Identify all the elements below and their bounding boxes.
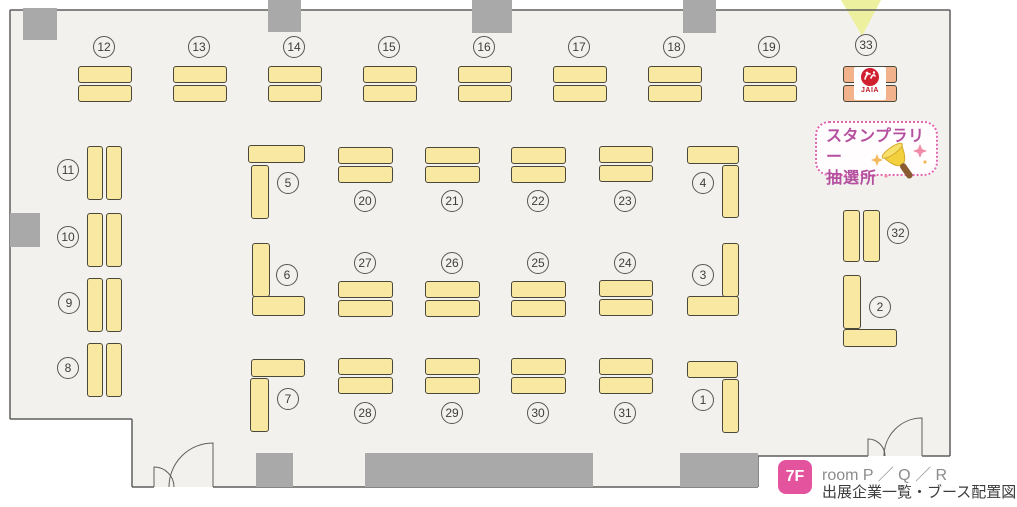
booth-11-table xyxy=(106,146,122,200)
booth-number-12: 12 xyxy=(93,36,115,58)
booth-number-29: 29 xyxy=(441,402,463,424)
booth-11-table xyxy=(87,146,103,200)
booth-number-30: 30 xyxy=(527,402,549,424)
booth-8-table xyxy=(87,343,103,397)
booth-27-table xyxy=(338,281,393,298)
floor-badge: 7F xyxy=(778,460,812,494)
pillar xyxy=(23,8,57,40)
booth-number-27: 27 xyxy=(354,252,376,274)
booth-1-table xyxy=(722,379,739,433)
booth-30-table xyxy=(511,358,566,375)
booth-23-table xyxy=(599,146,653,163)
floor-map: 1213141516171819JAIA33111098520212223462… xyxy=(0,0,1017,507)
booth-2-table xyxy=(843,329,897,347)
booth-23-table xyxy=(599,165,653,182)
handbell-icon xyxy=(868,136,938,190)
booth-number-18: 18 xyxy=(663,36,685,58)
pillar xyxy=(268,0,301,32)
booth-12-table xyxy=(78,66,132,83)
booth-number-13: 13 xyxy=(188,36,210,58)
booth-number-19: 19 xyxy=(758,36,780,58)
booth-18-table xyxy=(648,66,702,83)
booth-number-21: 21 xyxy=(441,190,463,212)
booth-24-table xyxy=(599,280,653,297)
booth-number-20: 20 xyxy=(354,190,376,212)
booth-number-28: 28 xyxy=(354,402,376,424)
booth-number-32: 32 xyxy=(887,222,909,244)
booth-25-table xyxy=(511,281,566,298)
booth-2-table xyxy=(843,275,861,329)
pillar xyxy=(365,453,593,487)
pillar xyxy=(10,213,40,247)
pillar xyxy=(256,453,293,487)
booth-5-table xyxy=(251,165,269,219)
booth-number-5: 5 xyxy=(277,172,299,194)
booth-4-table xyxy=(687,146,739,164)
booth-5-table xyxy=(248,145,305,163)
booth-number-31: 31 xyxy=(614,402,636,424)
booth-6-table xyxy=(252,296,305,316)
pillar xyxy=(680,453,758,487)
booth-20-table xyxy=(338,166,393,183)
booth-21-table xyxy=(425,166,480,183)
booth-number-2: 2 xyxy=(869,296,891,318)
booth-3-table xyxy=(687,296,739,316)
booth-9-table xyxy=(106,278,122,332)
booth-number-33: 33 xyxy=(855,34,877,56)
booth-33-logo-text: JAIA xyxy=(861,87,879,94)
booth-31-table xyxy=(599,358,653,375)
booth-number-15: 15 xyxy=(378,36,400,58)
booth-number-10: 10 xyxy=(57,226,79,248)
booth-22-table xyxy=(511,147,566,164)
booth-26-table xyxy=(425,300,480,317)
booth-26-table xyxy=(425,281,480,298)
booth-16-table xyxy=(458,85,512,102)
booth-number-22: 22 xyxy=(527,190,549,212)
booth-16-table xyxy=(458,66,512,83)
booth-number-17: 17 xyxy=(568,36,590,58)
booth-number-11: 11 xyxy=(57,159,79,181)
booth-19-table xyxy=(743,66,797,83)
booth-number-24: 24 xyxy=(614,252,636,274)
booth-15-table xyxy=(363,66,417,83)
booth-10-table xyxy=(87,213,103,267)
booth-number-9: 9 xyxy=(58,292,80,314)
booth-number-1: 1 xyxy=(692,389,714,411)
booth-number-3: 3 xyxy=(692,264,714,286)
booth-14-table xyxy=(268,66,322,83)
booth-number-4: 4 xyxy=(692,172,714,194)
booth-number-26: 26 xyxy=(441,252,463,274)
booth-10-table xyxy=(106,213,122,267)
booth-7-table xyxy=(251,359,305,377)
booth-29-table xyxy=(425,358,480,375)
booth-1-table xyxy=(687,361,738,378)
booth-number-8: 8 xyxy=(57,357,79,379)
booth-number-6: 6 xyxy=(276,264,298,286)
booth-25-table xyxy=(511,300,566,317)
pillar xyxy=(472,0,512,33)
booth-13-table xyxy=(173,85,227,102)
booth-15-table xyxy=(363,85,417,102)
booth-12-table xyxy=(78,85,132,102)
booth-9-table xyxy=(87,278,103,332)
booth-number-25: 25 xyxy=(527,252,549,274)
booth-24-table xyxy=(599,299,653,316)
booth-7-table xyxy=(250,378,269,432)
booth-32-table xyxy=(863,210,880,262)
booth-31-table xyxy=(599,377,653,394)
booth-17-table xyxy=(553,85,607,102)
booth-number-7: 7 xyxy=(277,388,299,410)
booth-33-logo: JAIA xyxy=(854,67,886,100)
booth-17-table xyxy=(553,66,607,83)
booth-22-table xyxy=(511,166,566,183)
booth-number-16: 16 xyxy=(473,36,495,58)
legend-subtitle: 出展企業一覧・ブース配置図 xyxy=(822,481,1016,502)
booth-29-table xyxy=(425,377,480,394)
booth-28-table xyxy=(338,377,393,394)
booth-32-table xyxy=(843,210,860,262)
booth-30-table xyxy=(511,377,566,394)
booth-27-table xyxy=(338,300,393,317)
booth-3-table xyxy=(722,243,739,297)
booth-13-table xyxy=(173,66,227,83)
booth-8-table xyxy=(106,343,122,397)
booth-18-table xyxy=(648,85,702,102)
booth-19-table xyxy=(743,85,797,102)
booth-14-table xyxy=(268,85,322,102)
booth-21-table xyxy=(425,147,480,164)
booth-28-table xyxy=(338,358,393,375)
booth-4-table xyxy=(722,165,739,218)
booth-number-14: 14 xyxy=(283,36,305,58)
booth-number-23: 23 xyxy=(614,190,636,212)
booth-6-table xyxy=(252,243,270,297)
booth-20-table xyxy=(338,147,393,164)
logo-mark-icon xyxy=(860,67,880,87)
pillar xyxy=(683,0,716,33)
